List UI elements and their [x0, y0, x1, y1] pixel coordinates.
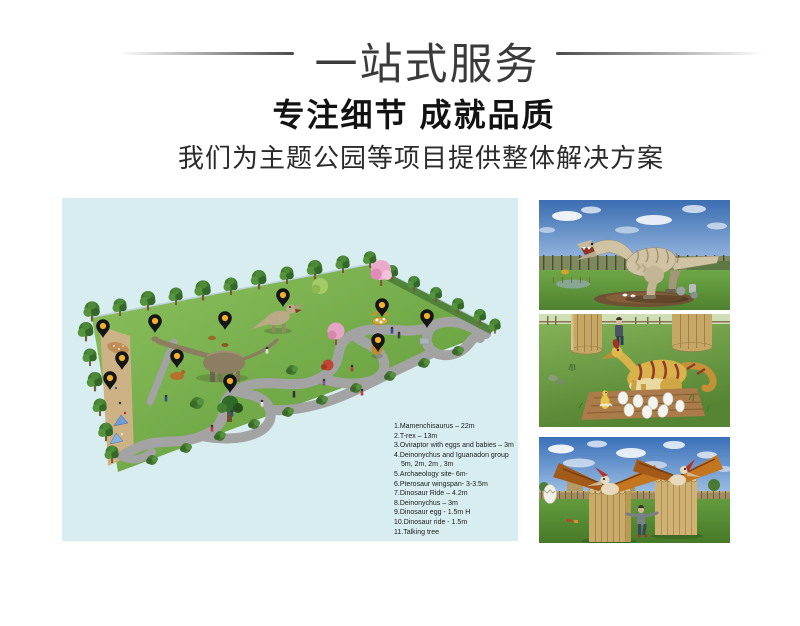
wooden-post-left — [571, 314, 602, 354]
yellow-dino-statue — [561, 270, 569, 275]
legend-item-5: 5.Archaeology site- 6m- — [394, 470, 518, 480]
slat-pillar-left — [589, 488, 631, 542]
photo-pterosaur-models — [539, 437, 730, 543]
legend-item-10: 10.Dinosaur ride - 1.5m — [394, 518, 518, 528]
legend-item-8: 8.Deinonychus – 3m — [394, 499, 518, 509]
oviraptor-eggs-image — [539, 314, 730, 427]
legend-item-9: 9.Dinosaur egg - 1.5m H — [394, 508, 518, 518]
park-plan-panel: 1.Mamenchisaurus – 22m 2.T-rex – 13m 3.O… — [62, 198, 518, 541]
egg-photo-prop — [544, 485, 557, 504]
photo-oviraptor-eggs — [539, 314, 730, 427]
legend-item-4: 4.Deinonychus and Iguanadon group — [394, 451, 518, 461]
park-legend: 1.Mamenchisaurus – 22m 2.T-rex – 13m 3.O… — [394, 422, 518, 537]
pterosaur-models-image — [539, 437, 730, 543]
solution-subheading: 我们为主题公园等项目提供整体解决方案 — [178, 138, 664, 175]
legend-item-6: 6.Pterosaur wingspan- 3-3.5m — [394, 480, 518, 490]
stone — [548, 375, 558, 381]
legend-item-2: 2.T-rex – 13m — [394, 432, 518, 442]
small-raptor — [222, 343, 229, 347]
wooden-post-right — [672, 314, 712, 352]
title-rule-right — [556, 52, 764, 55]
photo-column — [539, 200, 730, 543]
quality-heading: 专注细节 成就品质 — [273, 90, 556, 136]
legend-item-4b: 5m, 2m, 2m , 3m — [394, 460, 518, 470]
trex-model-image — [539, 200, 730, 310]
legend-item-11: 11.Talking tree — [394, 528, 518, 538]
legend-item-3: 3.Oviraptor with eggs and babies – 3m — [394, 441, 518, 451]
legend-item-1: 1.Mamenchisaurus – 22m — [394, 422, 518, 432]
photo-trex-model — [539, 200, 730, 310]
title-rule-left — [118, 52, 294, 55]
pond — [556, 280, 590, 289]
ride-structure — [420, 338, 429, 344]
service-title: 一站式服务 — [315, 30, 540, 92]
legend-item-7: 7.Dinosaur Ride – 4.2m — [394, 489, 518, 499]
goose — [623, 294, 628, 297]
small-raptor — [208, 336, 216, 340]
promo-page: 一站式服务 专注细节 成就品质 我们为主题公园等项目提供整体解决方案 — [0, 0, 800, 626]
